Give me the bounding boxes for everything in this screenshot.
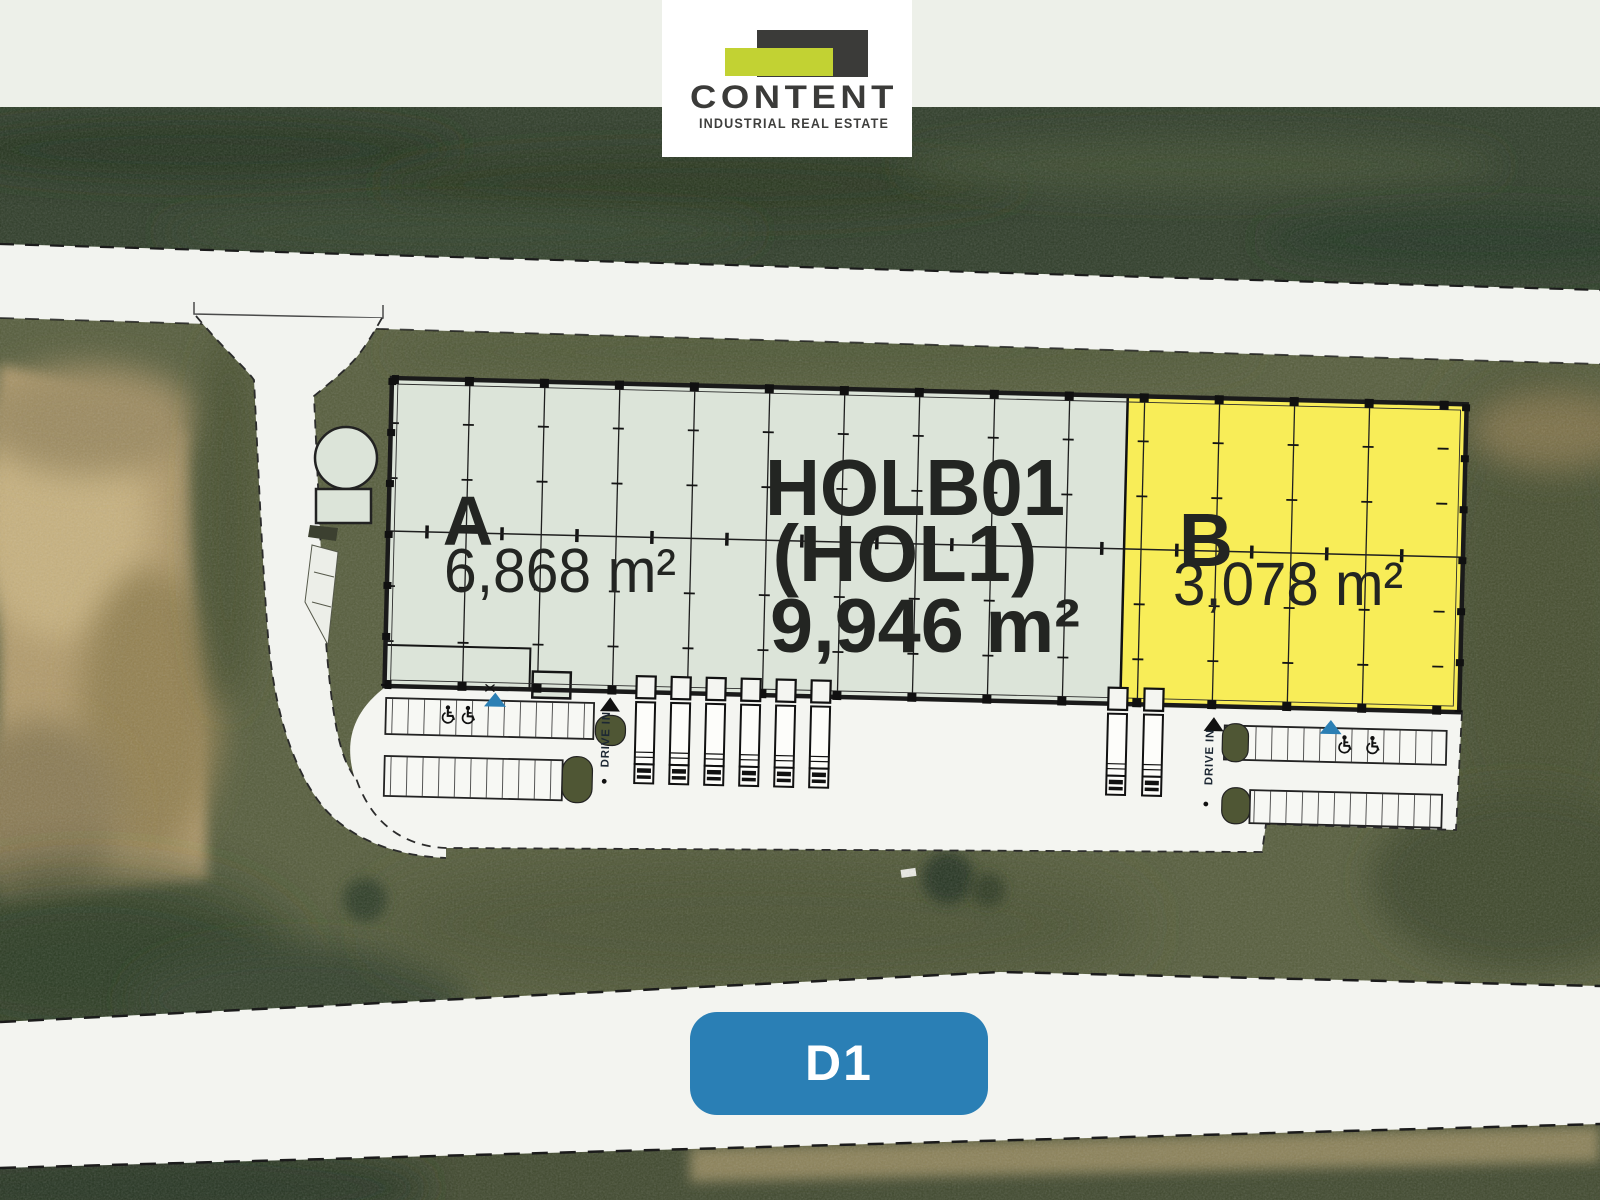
parking-island — [1221, 787, 1250, 824]
building-total-area: 9,946 m² — [770, 584, 1080, 669]
truck — [1106, 714, 1127, 795]
parking-island — [562, 756, 593, 803]
truck — [739, 705, 760, 786]
truck — [1142, 714, 1163, 795]
unit-b-area: 3,078 m² — [1173, 550, 1403, 618]
site-plan-page: DRIVE IN DRIVE IN A 6,868 m² HOLB01 (HOL… — [0, 0, 1600, 1200]
dock-door — [811, 680, 831, 702]
parking-stalls — [384, 756, 563, 800]
truck — [634, 702, 655, 783]
truck — [669, 703, 690, 784]
dock-door — [671, 677, 691, 699]
logo-green-block-icon — [725, 48, 833, 76]
drive-in-label: DRIVE IN — [600, 711, 613, 768]
site-plan-canvas: DRIVE IN DRIVE IN A 6,868 m² HOLB01 (HOL… — [0, 0, 1600, 1200]
parking-stalls — [1249, 790, 1442, 828]
drive-in-label: DRIVE IN — [1203, 729, 1216, 786]
brand-name: CONTENT — [690, 79, 898, 115]
truck — [774, 705, 795, 786]
brand-tagline: INDUSTRIAL REAL ESTATE — [699, 116, 889, 131]
dock-door — [741, 679, 761, 701]
highway-badge: D1 — [690, 1012, 988, 1115]
highway-badge-label: D1 — [805, 1035, 873, 1091]
unit-a-area: 6,868 m² — [444, 537, 676, 606]
dock-door — [1108, 688, 1128, 710]
dock-door — [776, 679, 796, 701]
utility-structure — [316, 489, 371, 523]
dock-door — [636, 676, 656, 698]
truck — [704, 704, 725, 785]
dock-door — [1144, 688, 1164, 710]
parking-island — [1222, 723, 1249, 762]
truck — [809, 706, 830, 787]
tank-structure — [315, 427, 377, 489]
dock-door — [706, 678, 726, 700]
